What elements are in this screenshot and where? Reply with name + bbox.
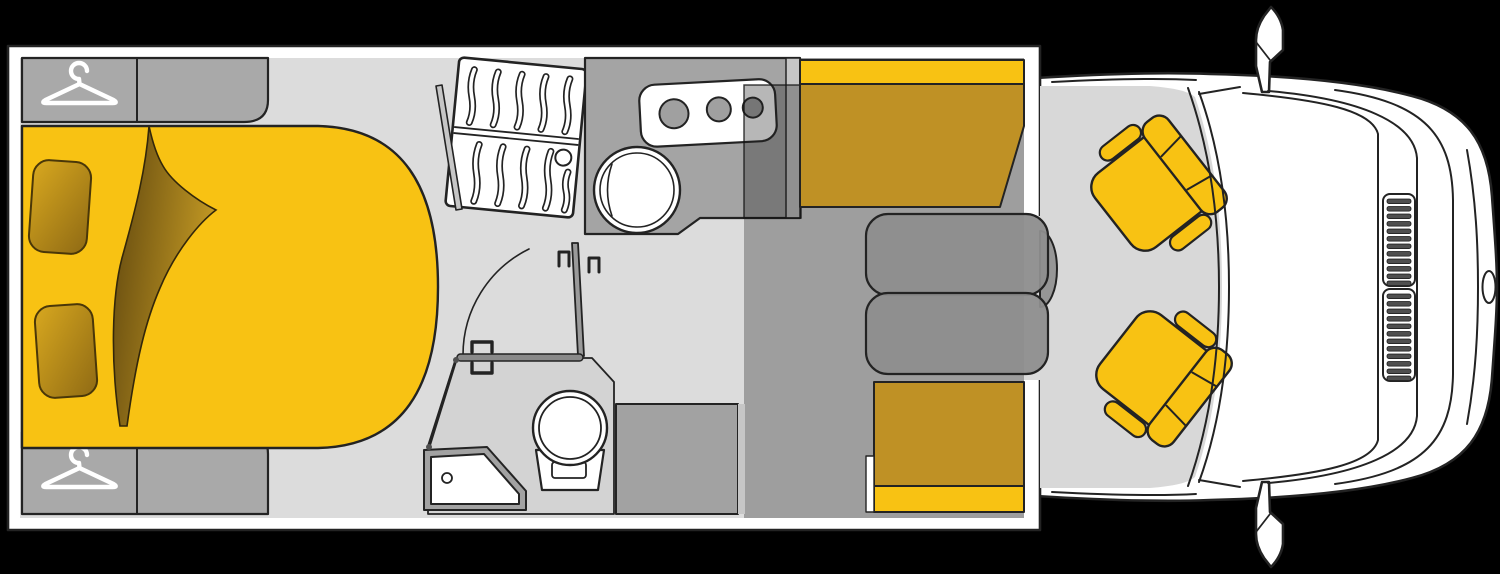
bench-front-backrest	[800, 60, 1024, 84]
wardrobe-front-body	[22, 58, 268, 122]
towel-bar	[457, 354, 583, 361]
toilet	[533, 391, 607, 490]
motorhome-floorplan	[0, 0, 1500, 574]
wardrobe-front	[22, 58, 268, 122]
burner-1	[659, 98, 689, 128]
shower-drain	[442, 473, 452, 483]
double-bed	[22, 126, 438, 448]
bench-rear-backrest	[874, 486, 1024, 512]
burner-2	[706, 97, 731, 122]
fridge-unit	[744, 85, 801, 218]
bumper-badge	[1483, 271, 1496, 303]
bench-front-seat	[800, 84, 1024, 207]
lower-cabinet	[616, 404, 738, 514]
sink	[594, 147, 680, 233]
bench-rear-seat	[874, 382, 1024, 486]
lower-cabinet-edge	[738, 404, 745, 514]
toilet-bowl	[533, 391, 607, 465]
pillow-top	[28, 159, 92, 255]
floorplan-svg	[0, 0, 1500, 574]
pillow-bottom	[34, 303, 98, 399]
kitchen	[585, 58, 801, 234]
slatted-cabinet-knob	[555, 149, 572, 166]
table-leaf-top	[866, 214, 1048, 295]
slatted-cabinet	[445, 57, 587, 218]
bench-side-wall	[866, 456, 874, 512]
table-leaf-bottom	[866, 293, 1048, 374]
